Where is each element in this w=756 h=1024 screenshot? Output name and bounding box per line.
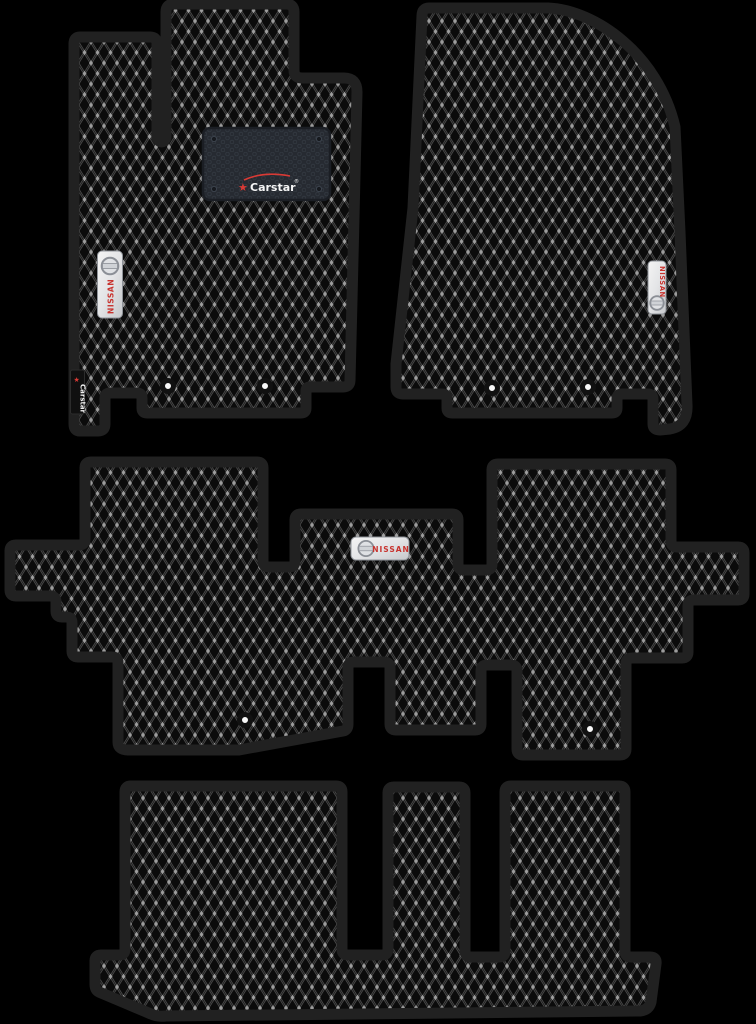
carstar-heel-logo-text: Carstar xyxy=(250,181,296,194)
third-row-mat-surface xyxy=(95,786,656,1016)
rivet-icon xyxy=(316,186,321,191)
nissan-badge-text: NISSAN xyxy=(372,545,410,554)
fastener-hole xyxy=(583,382,594,393)
passenger-mat-surface xyxy=(396,8,687,430)
mat-front-driver: ★ Carstar ® NISSAN ★ Carstar xyxy=(71,4,358,431)
mat-second-row: NISSAN xyxy=(10,462,744,755)
fastener-hole xyxy=(163,381,174,392)
fastener-hole xyxy=(487,383,498,394)
nissan-emblem-bar xyxy=(651,301,663,305)
nissan-badge-text: NISSAN xyxy=(658,266,666,298)
driver-carstar-edge-tag: ★ Carstar xyxy=(71,370,87,414)
driver-mat-surface xyxy=(74,4,357,431)
rivet-icon xyxy=(211,186,216,191)
product-image-car-mats: ★ Carstar ® NISSAN ★ Carstar N xyxy=(0,0,756,1024)
fastener-hole xyxy=(260,381,271,392)
fastener-hole xyxy=(240,715,251,726)
second-row-mat-surface xyxy=(10,462,744,755)
second-row-nissan-badge: NISSAN xyxy=(351,537,410,560)
fastener-hole xyxy=(585,724,596,735)
driver-nissan-badge: NISSAN xyxy=(98,251,123,318)
carstar-registered-mark: ® xyxy=(294,178,299,185)
carstar-star-icon: ★ xyxy=(74,376,80,384)
nissan-emblem-bar xyxy=(359,546,373,551)
rivet-icon xyxy=(211,136,216,141)
carstar-edge-tag-text: Carstar xyxy=(79,384,87,414)
nissan-badge-text: NISSAN xyxy=(107,279,116,314)
carstar-star-icon: ★ xyxy=(238,181,248,194)
mat-third-row xyxy=(95,786,656,1016)
nissan-emblem-bar xyxy=(103,264,118,269)
car-mats-scene: ★ Carstar ® NISSAN ★ Carstar N xyxy=(0,0,756,1024)
rivet-icon xyxy=(316,136,321,141)
driver-heel-pad: ★ Carstar ® xyxy=(203,128,330,200)
passenger-nissan-badge: NISSAN xyxy=(648,261,666,314)
mat-front-passenger: NISSAN xyxy=(396,8,687,430)
